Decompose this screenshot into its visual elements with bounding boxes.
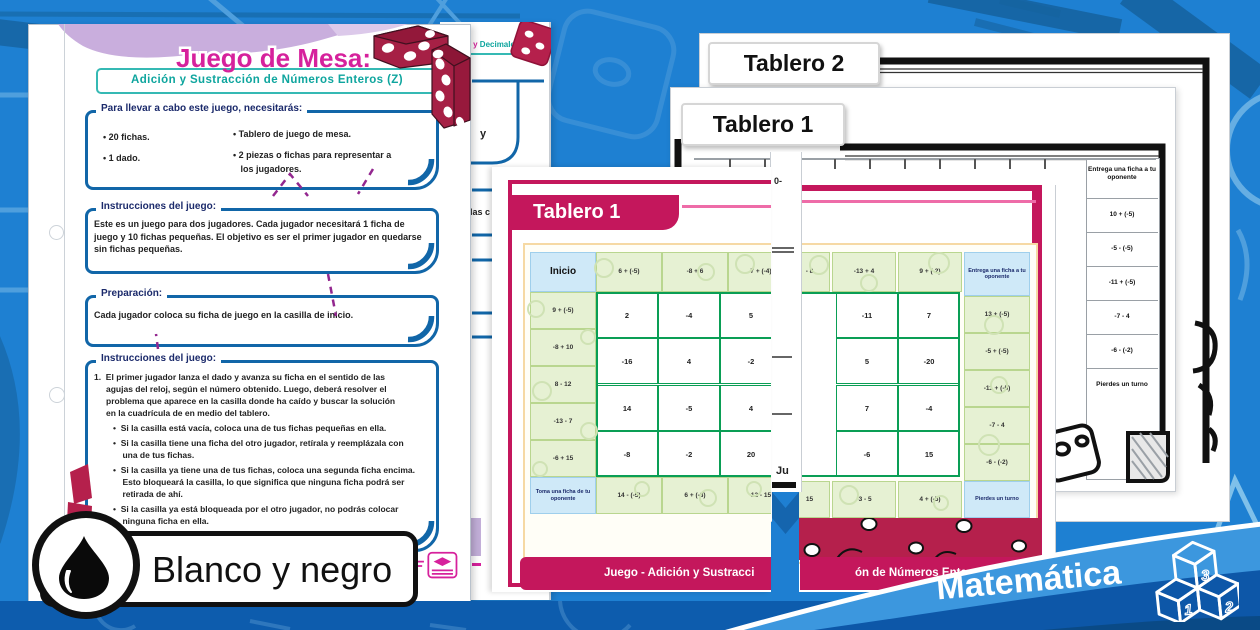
svg-text:y: y: [480, 128, 487, 140]
svg-text:2: 2: [1223, 600, 1234, 617]
svg-text:3: 3: [1200, 568, 1210, 585]
svg-text:las c: las c: [470, 207, 490, 217]
svg-text:1: 1: [1184, 602, 1194, 619]
svg-text:0-: 0-: [774, 176, 782, 186]
